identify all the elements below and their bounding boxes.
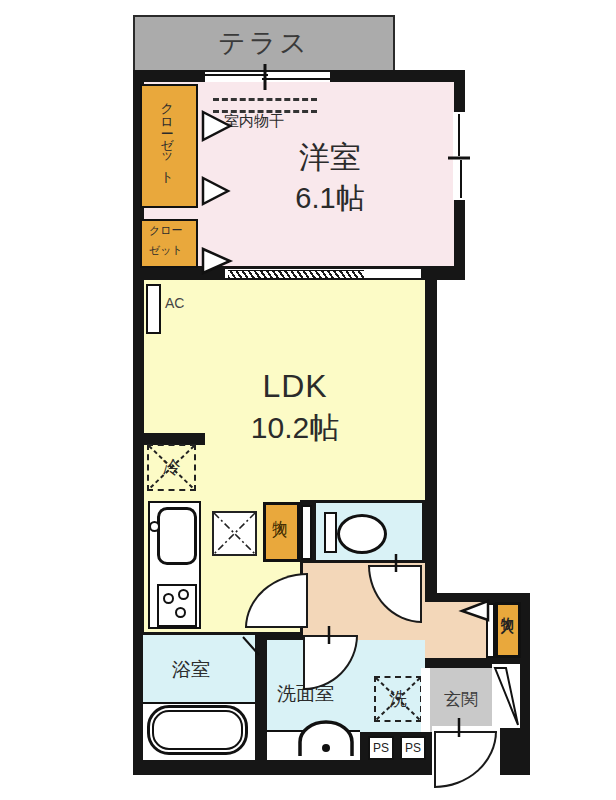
hallway-east bbox=[425, 602, 487, 658]
front-door-zone bbox=[492, 664, 520, 728]
storage-kitchen-door bbox=[301, 505, 312, 560]
storage-kitchen-label: 物入 bbox=[272, 508, 288, 512]
toilet-tank bbox=[324, 512, 337, 553]
western-room-size: 6.1帖 bbox=[270, 181, 390, 215]
bathroom-label: 浴室 bbox=[172, 660, 210, 680]
burner-3 bbox=[175, 607, 186, 618]
kitchen-cabinet-box bbox=[212, 511, 257, 556]
toilet-bowl bbox=[337, 514, 387, 554]
storage-entrance-door bbox=[486, 603, 495, 658]
ldk-name: LDK bbox=[230, 368, 360, 406]
ps-shaft-2: PS bbox=[400, 736, 426, 760]
bathtub-inner bbox=[152, 710, 243, 750]
entrance-side-strip bbox=[421, 668, 430, 732]
western-window bbox=[453, 112, 465, 200]
ldk-size: 10.2帖 bbox=[230, 410, 360, 446]
drying-label: 室内物干 bbox=[224, 113, 284, 129]
storage-entrance-label: 物入 bbox=[500, 607, 514, 611]
terrace-label: テラス bbox=[133, 15, 395, 72]
ac-label: AC bbox=[165, 296, 184, 311]
refrigerator-label: 冷 bbox=[147, 444, 196, 491]
washer-label: 洗 bbox=[374, 676, 422, 722]
western-room-name: 洋室 bbox=[270, 140, 390, 176]
washroom-counter bbox=[267, 730, 360, 760]
entrance-label: 玄関 bbox=[430, 668, 492, 732]
stove bbox=[157, 584, 197, 627]
burner-2 bbox=[178, 589, 189, 600]
burner-1 bbox=[163, 593, 174, 604]
sliding-door-hatch bbox=[228, 270, 364, 279]
ac-unit bbox=[146, 284, 161, 334]
closet-small-label2: ゼット bbox=[149, 245, 183, 257]
closet-small-label1: クロー bbox=[149, 225, 183, 237]
floor-plan: テラス クローゼット クロー ゼット 室内物干 洋室 6.1帖 LDK 10.2… bbox=[0, 0, 616, 800]
closet-large-label: クローゼット bbox=[160, 93, 174, 179]
terrace-window bbox=[205, 72, 330, 82]
drying-rail bbox=[213, 98, 317, 113]
kitchen-sink bbox=[157, 507, 197, 565]
ps-shaft-1: PS bbox=[368, 736, 394, 760]
faucet-icon bbox=[149, 521, 160, 532]
